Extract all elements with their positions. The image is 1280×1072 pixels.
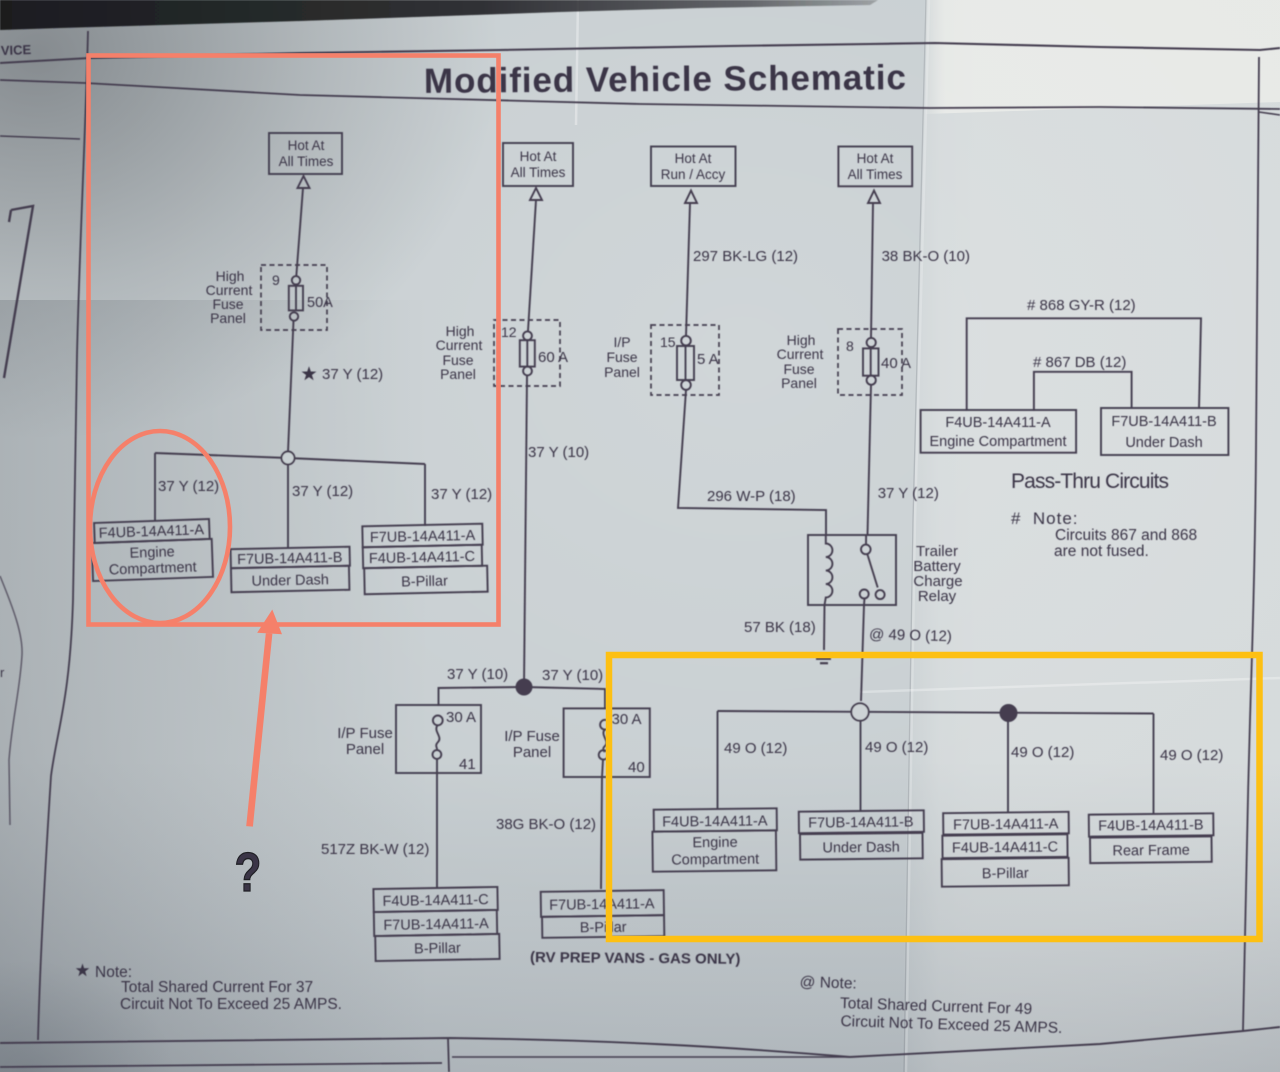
svg-text:Panel: Panel xyxy=(346,741,384,758)
svg-text:r: r xyxy=(0,665,5,680)
svg-text:F4UB-14A411-C: F4UB-14A411-C xyxy=(382,892,488,910)
svg-text:296 W-P (18): 296 W-P (18) xyxy=(707,488,796,505)
svg-text:38G BK-O (12): 38G BK-O (12) xyxy=(496,816,596,833)
svg-text:Panel: Panel xyxy=(210,310,246,326)
svg-text:Panel: Panel xyxy=(440,366,476,382)
svg-text:F7UB-14A411-B: F7UB-14A411-B xyxy=(237,550,343,568)
svg-text:50A: 50A xyxy=(307,295,333,311)
svg-text:5 A: 5 A xyxy=(697,351,719,368)
svg-text:?: ? xyxy=(235,841,262,903)
svg-text:I/P Fuse: I/P Fuse xyxy=(504,728,560,745)
svg-text:57 BK (18): 57 BK (18) xyxy=(744,619,816,636)
svg-text:37 Y (12): 37 Y (12) xyxy=(878,485,939,502)
svg-text:# Note:: # Note: xyxy=(1011,509,1079,528)
svg-text:Panel: Panel xyxy=(781,375,817,391)
svg-text:Circuits 867 and 868: Circuits 867 and 868 xyxy=(1055,527,1197,544)
svg-text:Engine: Engine xyxy=(129,544,175,562)
svg-text:F7UB-14A411-A: F7UB-14A411-A xyxy=(953,816,1059,833)
svg-text:Total Shared Current For 37: Total Shared Current For 37 xyxy=(121,979,313,996)
svg-text:15: 15 xyxy=(660,334,676,350)
svg-text:37 Y (12): 37 Y (12) xyxy=(158,478,219,495)
svg-text:37 Y (10): 37 Y (10) xyxy=(542,667,603,684)
svg-text:Under Dash: Under Dash xyxy=(251,572,329,590)
svg-text:Compartment: Compartment xyxy=(671,852,759,869)
svg-text:37 Y (10): 37 Y (10) xyxy=(447,666,508,683)
svg-text:Pass-Thru Circuits: Pass-Thru Circuits xyxy=(1011,470,1169,493)
svg-text:Modified Vehicle Schematic: Modified Vehicle Schematic xyxy=(424,58,906,101)
svg-text:B-Pillar: B-Pillar xyxy=(580,920,627,937)
svg-text:37 Y (12): 37 Y (12) xyxy=(292,483,353,500)
svg-text:30 A: 30 A xyxy=(612,711,642,728)
svg-text:Engine: Engine xyxy=(692,835,737,851)
svg-text:Panel: Panel xyxy=(604,364,640,380)
svg-text:60 A: 60 A xyxy=(538,349,568,366)
svg-text:All Times: All Times xyxy=(848,167,903,182)
svg-text:All Times: All Times xyxy=(279,154,334,169)
svg-text:40: 40 xyxy=(628,759,645,776)
svg-text:Current: Current xyxy=(777,346,824,362)
svg-text:F4UB-14A411-B: F4UB-14A411-B xyxy=(1098,817,1203,834)
svg-text:9: 9 xyxy=(272,272,280,288)
svg-text:Under Dash: Under Dash xyxy=(1125,435,1202,451)
svg-text:I/P: I/P xyxy=(613,334,630,350)
svg-text:F7UB-14A411-A: F7UB-14A411-A xyxy=(549,896,655,913)
svg-text:F4UB-14A411-C: F4UB-14A411-C xyxy=(952,839,1058,856)
svg-text:Engine Compartment: Engine Compartment xyxy=(929,434,1066,450)
svg-text:All Times: All Times xyxy=(511,165,566,180)
svg-text:38 BK-O (10): 38 BK-O (10) xyxy=(882,248,970,265)
svg-text:Panel: Panel xyxy=(513,744,551,761)
svg-text:(RV PREP VANS - GAS ONLY): (RV PREP VANS - GAS ONLY) xyxy=(530,949,740,968)
svg-text:Current: Current xyxy=(436,337,483,353)
svg-text:Compartment: Compartment xyxy=(109,559,197,578)
svg-text:297 BK-LG (12): 297 BK-LG (12) xyxy=(693,248,798,265)
svg-text:B-Pillar: B-Pillar xyxy=(401,573,448,590)
svg-text:49 O (12): 49 O (12) xyxy=(1160,747,1223,764)
svg-text:F7UB-14A411-A: F7UB-14A411-A xyxy=(383,916,489,934)
svg-text:@ Note:: @ Note: xyxy=(799,974,857,993)
svg-text:I/P Fuse: I/P Fuse xyxy=(337,725,393,742)
svg-text:30 A: 30 A xyxy=(446,709,476,726)
svg-text:B-Pillar: B-Pillar xyxy=(982,866,1029,882)
svg-text:Circuit Not To Exceed 25 AMPS.: Circuit Not To Exceed 25 AMPS. xyxy=(120,996,342,1013)
svg-text:49 O (12): 49 O (12) xyxy=(1011,744,1074,761)
svg-text:F7UB-14A411-B: F7UB-14A411-B xyxy=(808,814,913,831)
svg-text:F4UB-14A411-C: F4UB-14A411-C xyxy=(369,549,475,567)
svg-text:Hot At: Hot At xyxy=(520,149,557,164)
svg-text:# 868 GY-R (12): # 868 GY-R (12) xyxy=(1027,297,1136,314)
svg-text:Hot At: Hot At xyxy=(857,151,894,166)
svg-text:# 867 DB (12): # 867 DB (12) xyxy=(1033,354,1126,371)
svg-text:Hot At: Hot At xyxy=(675,151,712,166)
svg-text:Under Dash: Under Dash xyxy=(822,840,900,857)
svg-text:37 Y (12): 37 Y (12) xyxy=(322,366,383,383)
svg-text:F7UB-14A411-B: F7UB-14A411-B xyxy=(1111,414,1216,430)
svg-text:VICE: VICE xyxy=(1,42,32,58)
svg-text:517Z BK-W (12): 517Z BK-W (12) xyxy=(321,841,429,858)
svg-text:Hot At: Hot At xyxy=(288,138,325,153)
svg-text:@ 49 O (12): @ 49 O (12) xyxy=(869,626,952,645)
svg-text:are not fused.: are not fused. xyxy=(1054,543,1149,560)
svg-text:49 O (12): 49 O (12) xyxy=(724,740,787,757)
svg-text:40 A: 40 A xyxy=(881,355,911,372)
svg-text:8: 8 xyxy=(846,338,854,354)
svg-text:F4UB-14A411-A: F4UB-14A411-A xyxy=(945,415,1051,431)
svg-text:Rear Frame: Rear Frame xyxy=(1112,843,1190,860)
svg-text:F4UB-14A411-A: F4UB-14A411-A xyxy=(662,813,768,830)
svg-text:37 Y (10): 37 Y (10) xyxy=(528,444,589,461)
svg-text:Run / Accy: Run / Accy xyxy=(661,167,726,182)
svg-text:Fuse: Fuse xyxy=(606,349,637,365)
svg-text:Relay: Relay xyxy=(918,588,957,605)
svg-text:F7UB-14A411-A: F7UB-14A411-A xyxy=(370,528,476,546)
svg-text:B-Pillar: B-Pillar xyxy=(414,941,461,958)
svg-text:41: 41 xyxy=(459,756,476,773)
svg-text:12: 12 xyxy=(501,324,517,340)
svg-text:49 O (12): 49 O (12) xyxy=(865,739,928,756)
svg-text:37 Y (12): 37 Y (12) xyxy=(431,486,492,503)
